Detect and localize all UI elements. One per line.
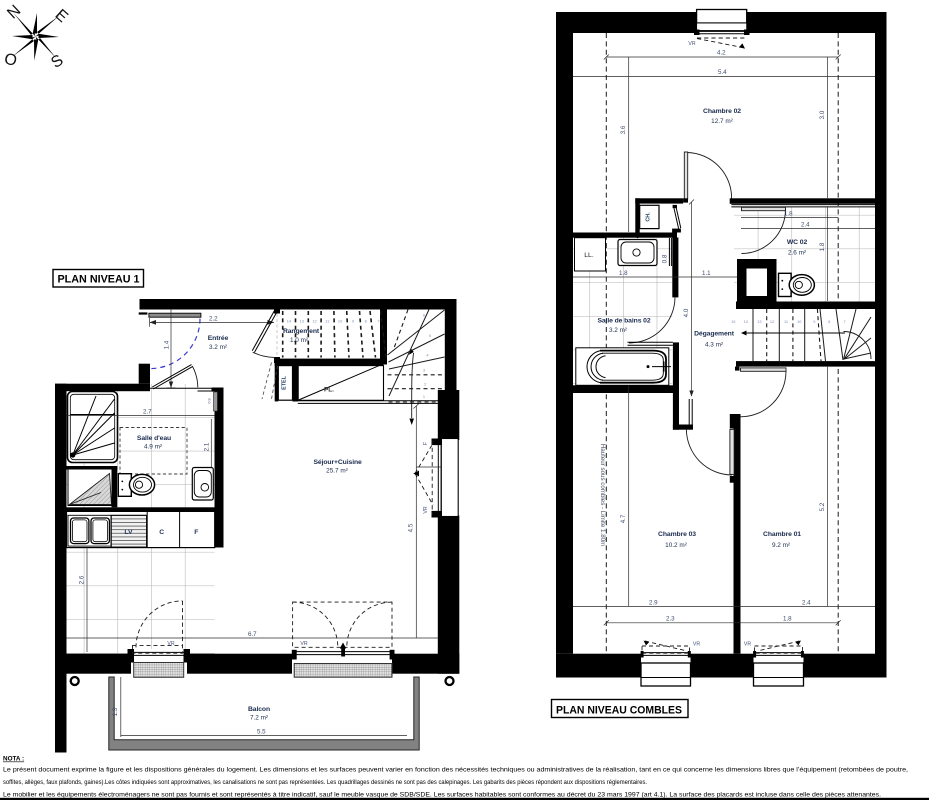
svg-text:Balcon: Balcon xyxy=(248,706,270,713)
svg-text:Hauteur sous combles - Limite: Hauteur sous combles - Limite 1.80m xyxy=(599,444,606,546)
svg-text:2.6: 2.6 xyxy=(79,575,86,584)
svg-text:5.4: 5.4 xyxy=(718,69,727,76)
svg-text:9: 9 xyxy=(813,319,815,324)
svg-text:2.2: 2.2 xyxy=(209,316,218,323)
svg-text:7: 7 xyxy=(377,319,379,324)
svg-text:4.0: 4.0 xyxy=(683,308,690,317)
svg-text:LL.: LL. xyxy=(584,252,594,259)
svg-text:Entrée: Entrée xyxy=(208,335,229,342)
svg-text:3.6: 3.6 xyxy=(620,125,627,134)
svg-text:Séjour+Cuisine: Séjour+Cuisine xyxy=(313,459,362,466)
svg-text:0.8: 0.8 xyxy=(662,254,669,263)
svg-text:NOTA :: NOTA : xyxy=(3,756,24,763)
svg-text:11: 11 xyxy=(325,319,329,324)
svg-text:1.4: 1.4 xyxy=(164,340,171,349)
svg-text:Le présent document exprime la: Le présent document exprime la figure et… xyxy=(3,767,908,774)
svg-text:2.9: 2.9 xyxy=(649,599,658,606)
svg-text:5.5: 5.5 xyxy=(257,729,266,736)
svg-text:PLAN NIVEAU COMBLES: PLAN NIVEAU COMBLES xyxy=(556,705,682,717)
svg-text:6: 6 xyxy=(423,312,425,317)
svg-text:Chambre 03: Chambre 03 xyxy=(658,531,696,538)
svg-text:LV: LV xyxy=(124,529,133,536)
svg-text:2.7: 2.7 xyxy=(143,409,152,416)
svg-text:3: 3 xyxy=(423,368,425,373)
svg-text:F: F xyxy=(423,442,429,445)
svg-text:4.5: 4.5 xyxy=(408,523,415,532)
svg-text:6.7: 6.7 xyxy=(248,631,257,638)
svg-text:CH.: CH. xyxy=(645,212,651,222)
svg-text:1.8: 1.8 xyxy=(784,210,793,217)
svg-text:11: 11 xyxy=(784,319,788,324)
svg-text:25.7 m²: 25.7 m² xyxy=(326,468,348,475)
svg-text:1.1: 1.1 xyxy=(702,270,711,277)
svg-text:1.3: 1.3 xyxy=(112,707,119,716)
svg-text:8: 8 xyxy=(365,319,367,324)
svg-text:soffites, allèges, faux plafon: soffites, allèges, faux plafonds, gaines… xyxy=(3,779,647,786)
svg-text:VR: VR xyxy=(423,506,429,513)
svg-text:VR: VR xyxy=(744,642,751,648)
svg-text:9.2 m²: 9.2 m² xyxy=(772,542,790,549)
svg-text:3.0: 3.0 xyxy=(819,110,826,119)
svg-text:VR: VR xyxy=(693,642,700,648)
svg-text:13: 13 xyxy=(757,319,761,324)
svg-text:PL.: PL. xyxy=(324,387,334,394)
svg-text:8: 8 xyxy=(828,319,830,324)
svg-text:Salle de bains 02: Salle de bains 02 xyxy=(597,318,650,325)
svg-text:ETEL: ETEL xyxy=(282,375,288,389)
svg-text:WC 02: WC 02 xyxy=(787,239,808,246)
svg-text:1.8: 1.8 xyxy=(619,270,628,277)
svg-text:2.4: 2.4 xyxy=(801,221,810,228)
svg-text:2: 2 xyxy=(424,382,426,387)
svg-text:5: 5 xyxy=(429,333,431,338)
svg-text:2.3: 2.3 xyxy=(666,616,675,623)
svg-text:12: 12 xyxy=(312,319,316,324)
svg-text:1.0 m²: 1.0 m² xyxy=(290,337,308,344)
svg-text:1.8: 1.8 xyxy=(819,242,826,251)
svg-text:5.2: 5.2 xyxy=(819,502,826,511)
svg-text:F: F xyxy=(194,529,198,536)
svg-text:12: 12 xyxy=(770,319,774,324)
svg-text:4.7: 4.7 xyxy=(620,514,627,523)
svg-text:4.2: 4.2 xyxy=(717,50,726,57)
svg-text:Dégagement: Dégagement xyxy=(694,331,735,338)
svg-text:0.9: 0.9 xyxy=(208,398,212,403)
svg-text:Salle d'eau: Salle d'eau xyxy=(137,435,171,442)
svg-text:Chambre 02: Chambre 02 xyxy=(703,108,741,115)
svg-text:10.2 m²: 10.2 m² xyxy=(665,542,687,549)
svg-text:4.9 m²: 4.9 m² xyxy=(144,444,162,451)
svg-text:4.3 m²: 4.3 m² xyxy=(705,342,723,349)
svg-text:VR: VR xyxy=(167,641,174,647)
svg-text:15: 15 xyxy=(731,319,735,324)
svg-text:Rangement: Rangement xyxy=(283,328,320,335)
svg-text:3.2 m²: 3.2 m² xyxy=(209,344,227,351)
svg-text:VR: VR xyxy=(688,41,695,47)
svg-text:2.1: 2.1 xyxy=(203,442,210,451)
svg-text:13: 13 xyxy=(300,319,304,324)
svg-text:2.6 m²: 2.6 m² xyxy=(788,250,806,257)
svg-text:VR: VR xyxy=(300,641,307,647)
svg-text:7.2 m²: 7.2 m² xyxy=(250,715,268,722)
svg-text:Chambre 01: Chambre 01 xyxy=(763,531,801,538)
svg-text:PLAN NIVEAU 1: PLAN NIVEAU 1 xyxy=(58,274,140,286)
svg-text:Le mobilier et les équipements: Le mobilier et les équipements électromé… xyxy=(3,792,881,799)
svg-text:7: 7 xyxy=(844,319,846,324)
svg-text:9: 9 xyxy=(352,319,354,324)
svg-text:1.8: 1.8 xyxy=(783,616,792,623)
svg-text:2.4: 2.4 xyxy=(802,599,811,606)
svg-text:1: 1 xyxy=(423,394,425,399)
svg-text:3.2 m²: 3.2 m² xyxy=(609,327,627,334)
svg-text:C: C xyxy=(159,529,164,536)
svg-text:12.7 m²: 12.7 m² xyxy=(711,118,733,125)
